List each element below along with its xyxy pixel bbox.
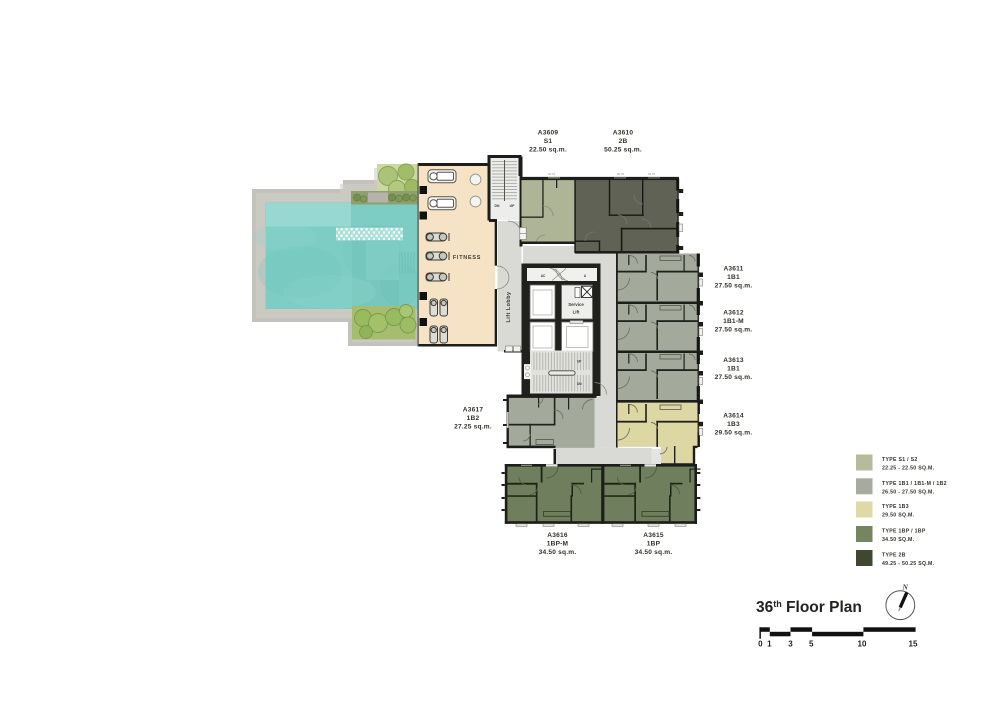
svg-text:0: 0	[758, 640, 763, 649]
svg-text:36th Floor Plan: 36th Floor Plan	[756, 599, 862, 616]
svg-text:TYPE 1B3: TYPE 1B3	[882, 504, 909, 510]
svg-text:27.50 sq.m.: 27.50 sq.m.	[715, 327, 753, 334]
svg-text:1: 1	[767, 640, 772, 649]
svg-text:27.50 sq.m.: 27.50 sq.m.	[715, 374, 753, 381]
svg-text:2B: 2B	[619, 138, 628, 145]
svg-text:34.50 SQ.M.: 34.50 SQ.M.	[882, 537, 915, 543]
svg-text:A3610: A3610	[613, 130, 634, 137]
svg-text:5: 5	[809, 640, 814, 649]
svg-text:22.50 sq.m.: 22.50 sq.m.	[529, 147, 567, 154]
svg-text:50.25 sq.m.: 50.25 sq.m.	[604, 147, 642, 154]
svg-text:Service: Service	[568, 302, 584, 307]
svg-text:UP: UP	[510, 204, 515, 208]
svg-text:34.50 sq.m.: 34.50 sq.m.	[635, 549, 673, 556]
svg-text:A3614: A3614	[723, 413, 744, 420]
svg-text:27.50 sq.m.: 27.50 sq.m.	[715, 283, 753, 290]
svg-text:1BP-M: 1BP-M	[547, 541, 569, 548]
svg-text:1B1: 1B1	[727, 366, 740, 373]
svg-text:34.75: 34.75	[648, 172, 655, 176]
svg-text:FITNESS: FITNESS	[453, 255, 481, 261]
svg-text:10: 10	[858, 640, 867, 649]
svg-text:DN: DN	[577, 382, 582, 386]
svg-text:29.50 SQ.M.: 29.50 SQ.M.	[882, 513, 915, 519]
svg-text:A3613: A3613	[723, 357, 744, 364]
svg-text:A3615: A3615	[643, 532, 664, 539]
svg-text:A3612: A3612	[723, 310, 744, 317]
svg-text:A3616: A3616	[547, 532, 568, 539]
svg-text:Lift: Lift	[573, 310, 580, 315]
svg-text:26.50 - 27.50 SQ.M.: 26.50 - 27.50 SQ.M.	[882, 489, 935, 495]
svg-text:S1: S1	[544, 138, 553, 145]
svg-text:1B3: 1B3	[727, 421, 740, 428]
svg-text:30.75: 30.75	[617, 172, 624, 176]
svg-text:1B1-M: 1B1-M	[723, 318, 744, 325]
svg-text:A3609: A3609	[538, 130, 559, 137]
svg-text:3: 3	[788, 640, 793, 649]
svg-text:TYPE S1 / S2: TYPE S1 / S2	[882, 457, 918, 463]
svg-text:27.25 sq.m.: 27.25 sq.m.	[454, 424, 492, 431]
svg-text:49.25 - 50.25 SQ.M.: 49.25 - 50.25 SQ.M.	[882, 561, 935, 567]
svg-text:TYPE 1BP / 1BP: TYPE 1BP / 1BP	[882, 529, 926, 535]
svg-text:A3617: A3617	[463, 407, 484, 414]
svg-text:15: 15	[909, 640, 918, 649]
svg-text:1BP: 1BP	[647, 541, 661, 548]
svg-text:22.25 - 22.50 SQ.M.: 22.25 - 22.50 SQ.M.	[882, 466, 935, 472]
svg-text:34.75: 34.75	[548, 172, 555, 176]
svg-text:29.50 sq.m.: 29.50 sq.m.	[715, 430, 753, 437]
svg-text:Lift Lobby: Lift Lobby	[506, 291, 512, 322]
svg-text:A3611: A3611	[723, 266, 743, 273]
svg-text:1B1: 1B1	[727, 274, 740, 281]
svg-text:DN: DN	[495, 204, 500, 208]
svg-text:34.50 sq.m.: 34.50 sq.m.	[539, 549, 577, 556]
svg-text:1B2: 1B2	[467, 415, 480, 422]
svg-text:TYPE 2B: TYPE 2B	[882, 553, 906, 559]
svg-text:N: N	[902, 583, 909, 592]
svg-text:AC: AC	[541, 274, 546, 278]
svg-text:TYPE 1B1 / 1B1-M / 1B2: TYPE 1B1 / 1B1-M / 1B2	[882, 481, 947, 487]
